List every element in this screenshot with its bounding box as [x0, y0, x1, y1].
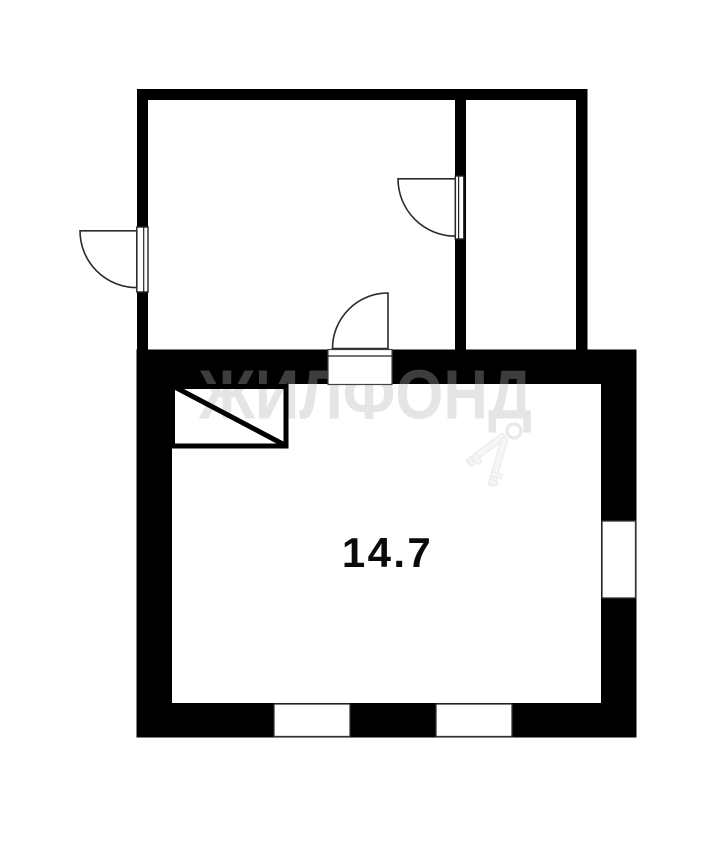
svg-text:14.7: 14.7 — [342, 529, 433, 576]
